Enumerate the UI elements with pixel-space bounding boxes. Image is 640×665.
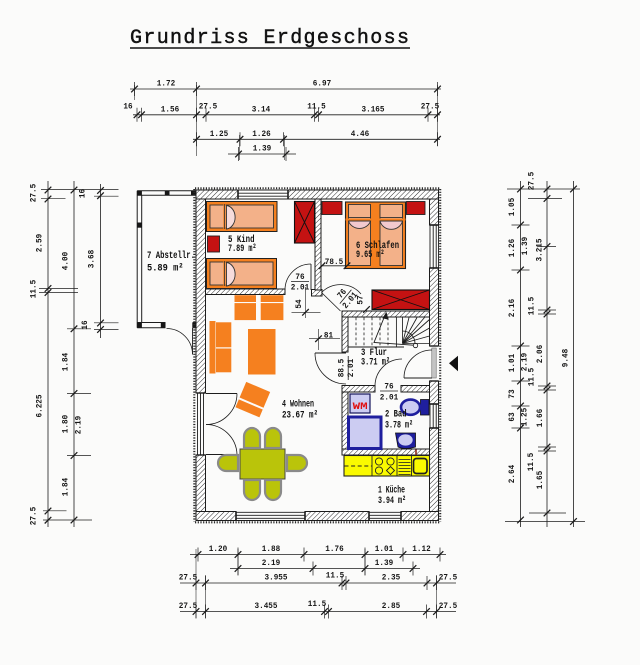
svg-text:1.05: 1.05: [507, 198, 517, 216]
svg-text:4.00: 4.00: [61, 252, 71, 270]
svg-text:1.56: 1.56: [161, 104, 179, 114]
svg-text:3.78 m²: 3.78 m²: [385, 420, 413, 432]
svg-text:1.39: 1.39: [253, 144, 271, 154]
svg-text:11.5: 11.5: [527, 297, 537, 315]
svg-text:27.5: 27.5: [179, 573, 197, 583]
svg-text:1.88: 1.88: [262, 544, 280, 554]
svg-text:1.12: 1.12: [412, 544, 430, 554]
svg-text:27.5: 27.5: [527, 172, 537, 190]
svg-text:11.5: 11.5: [526, 453, 536, 471]
svg-text:2.01: 2.01: [291, 283, 309, 293]
svg-text:3.94 m²: 3.94 m²: [378, 495, 406, 507]
svg-text:6.225: 6.225: [35, 395, 45, 418]
svg-text:2.01: 2.01: [346, 359, 356, 377]
svg-text:1.20: 1.20: [209, 544, 227, 554]
svg-text:5.89 m²: 5.89 m²: [147, 263, 184, 275]
svg-text:3.215: 3.215: [535, 239, 545, 262]
svg-text:1.66: 1.66: [535, 409, 545, 427]
svg-text:57: 57: [356, 295, 366, 304]
svg-text:11.5: 11.5: [308, 599, 326, 609]
svg-text:1.26: 1.26: [252, 129, 270, 139]
svg-text:54: 54: [294, 299, 304, 308]
svg-text:3.68: 3.68: [87, 250, 97, 268]
svg-text:1.01: 1.01: [375, 544, 393, 554]
svg-text:7.89 m²: 7.89 m²: [228, 243, 257, 255]
svg-text:1.26: 1.26: [507, 239, 517, 257]
svg-text:63: 63: [507, 412, 517, 421]
svg-text:2.19: 2.19: [520, 353, 530, 371]
svg-text:1.80: 1.80: [61, 415, 71, 433]
svg-text:11.5: 11.5: [29, 280, 39, 298]
svg-text:76: 76: [384, 382, 393, 392]
svg-text:27.5: 27.5: [439, 601, 457, 611]
svg-text:1.01: 1.01: [507, 354, 517, 372]
svg-text:1.72: 1.72: [157, 79, 175, 89]
svg-text:2.35: 2.35: [382, 573, 400, 583]
svg-text:27.5: 27.5: [29, 507, 39, 525]
svg-text:6.97: 6.97: [313, 79, 331, 89]
svg-text:1.25: 1.25: [210, 129, 228, 139]
svg-text:1.39: 1.39: [520, 237, 530, 255]
svg-text:23.67 m²: 23.67 m²: [282, 410, 318, 422]
svg-text:11.5: 11.5: [326, 571, 344, 581]
svg-text:7 Abstellr.: 7 Abstellr.: [147, 250, 195, 262]
svg-text:76: 76: [295, 272, 304, 282]
svg-text:2.01: 2.01: [380, 393, 398, 403]
svg-text:9.48: 9.48: [561, 349, 571, 367]
svg-text:2.06: 2.06: [535, 345, 545, 363]
svg-text:3.165: 3.165: [362, 104, 385, 114]
svg-text:3.71 m²: 3.71 m²: [361, 357, 390, 369]
svg-text:2.59: 2.59: [35, 234, 45, 252]
svg-text:3.955: 3.955: [265, 573, 288, 583]
svg-text:27.5: 27.5: [29, 184, 39, 202]
svg-text:2.64: 2.64: [507, 465, 517, 483]
svg-text:2.19: 2.19: [262, 558, 280, 568]
svg-text:1.25: 1.25: [520, 408, 530, 426]
svg-text:11.5: 11.5: [307, 101, 325, 111]
svg-text:16: 16: [81, 320, 90, 329]
svg-text:1.39: 1.39: [375, 558, 393, 568]
svg-text:27.5: 27.5: [199, 101, 217, 111]
svg-text:1.76: 1.76: [325, 544, 343, 554]
svg-text:1.84: 1.84: [61, 353, 71, 371]
svg-text:2.16: 2.16: [507, 299, 517, 317]
svg-text:3.14: 3.14: [252, 104, 270, 114]
svg-text:27.5: 27.5: [439, 573, 457, 583]
svg-text:Grundriss Erdgeschoss: Grundriss Erdgeschoss: [130, 27, 409, 50]
svg-text:4.46: 4.46: [351, 129, 369, 139]
svg-text:2.85: 2.85: [382, 601, 400, 611]
svg-text:73: 73: [507, 389, 517, 398]
svg-text:16: 16: [79, 189, 88, 198]
svg-text:2.19: 2.19: [74, 416, 84, 434]
svg-text:27.5: 27.5: [179, 601, 197, 611]
svg-text:1.84: 1.84: [61, 478, 71, 496]
svg-text:16: 16: [123, 103, 132, 112]
svg-text:WM: WM: [353, 402, 368, 413]
svg-text:3.455: 3.455: [255, 601, 278, 611]
svg-text:9.65 m²: 9.65 m²: [356, 249, 385, 261]
svg-text:1.65: 1.65: [535, 471, 545, 489]
svg-text:27.5: 27.5: [421, 101, 439, 111]
